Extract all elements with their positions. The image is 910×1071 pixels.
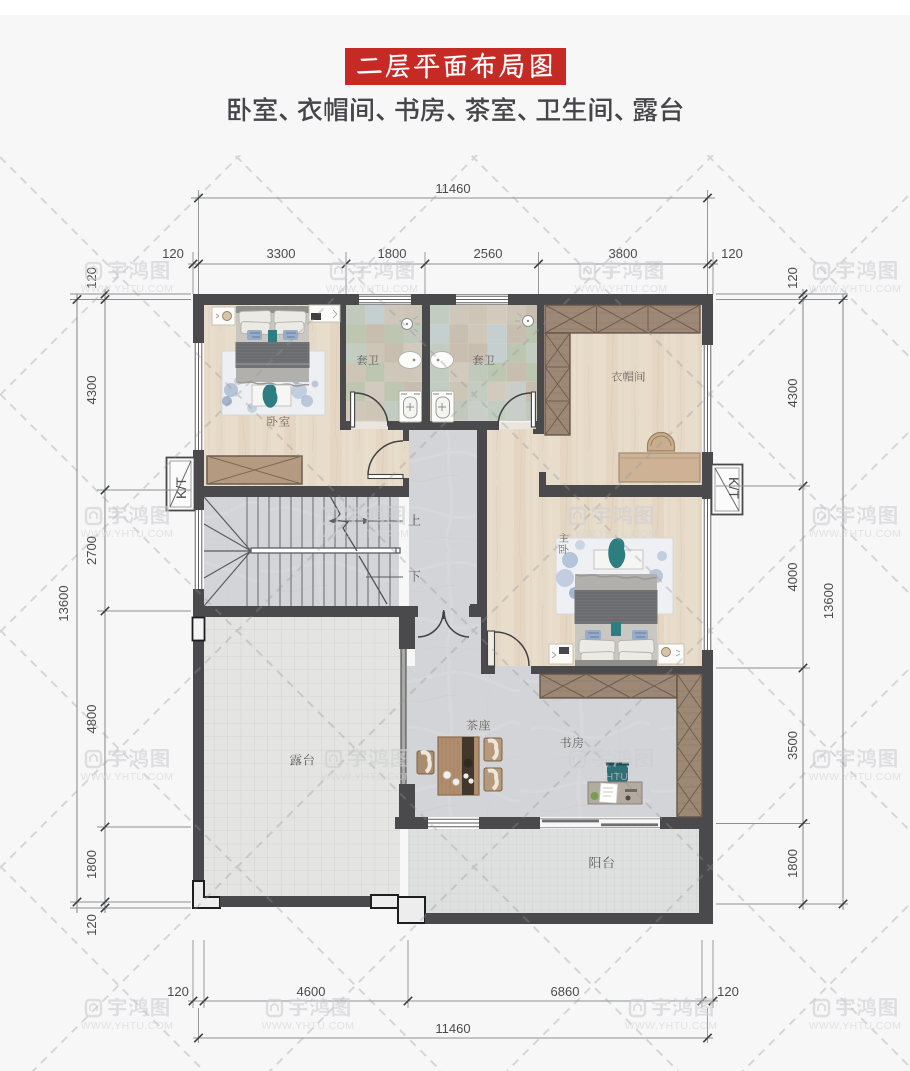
svg-text:WWW.YHTU.COM: WWW.YHTU.COM [321, 771, 414, 783]
svg-text:WWW.YHTU.COM: WWW.YHTU.COM [262, 1020, 355, 1032]
svg-text:120: 120 [84, 914, 99, 936]
svg-text:4300: 4300 [785, 379, 800, 408]
svg-text:WWW.YHTU.COM: WWW.YHTU.COM [81, 283, 174, 295]
svg-text:120: 120 [785, 267, 800, 289]
svg-text:3500: 3500 [785, 731, 800, 760]
svg-text:WWW.YHTU.COM: WWW.YHTU.COM [809, 771, 902, 783]
svg-text:1800: 1800 [84, 850, 99, 879]
svg-text:WWW.YHTU.COM: WWW.YHTU.COM [809, 528, 902, 540]
svg-text:13600: 13600 [56, 585, 71, 621]
svg-text:2560: 2560 [474, 246, 503, 261]
svg-text:WWW.YHTU.COM: WWW.YHTU.COM [809, 1020, 902, 1032]
svg-text:120: 120 [162, 246, 184, 261]
svg-text:WWW.YHTU.COM: WWW.YHTU.COM [565, 771, 658, 783]
svg-text:4300: 4300 [84, 376, 99, 405]
svg-text:1800: 1800 [378, 246, 407, 261]
svg-text:2700: 2700 [84, 536, 99, 565]
svg-text:WWW.YHTU.COM: WWW.YHTU.COM [81, 1020, 174, 1032]
svg-text:K/T: K/T [173, 477, 189, 499]
svg-text:11460: 11460 [435, 1021, 470, 1036]
svg-text:3800: 3800 [609, 246, 638, 261]
svg-text:WWW.YHTU.COM: WWW.YHTU.COM [565, 528, 658, 540]
svg-text:WWW.YHTU.COM: WWW.YHTU.COM [809, 283, 902, 295]
svg-text:120: 120 [717, 984, 739, 999]
svg-text:11460: 11460 [435, 181, 470, 196]
svg-text:WWW.YHTU.COM: WWW.YHTU.COM [326, 283, 419, 295]
svg-text:3300: 3300 [267, 246, 296, 261]
svg-text:1800: 1800 [785, 849, 800, 878]
svg-text:4800: 4800 [84, 705, 99, 734]
svg-text:120: 120 [167, 984, 189, 999]
svg-text:K/T: K/T [726, 477, 742, 499]
svg-text:WWW.YHTU.COM: WWW.YHTU.COM [81, 771, 174, 783]
svg-text:WWW.YHTU.COM: WWW.YHTU.COM [81, 528, 174, 540]
svg-text:4600: 4600 [297, 984, 326, 999]
svg-text:WWW.YHTU.COM: WWW.YHTU.COM [575, 283, 668, 295]
svg-text:6860: 6860 [551, 984, 580, 999]
svg-text:4000: 4000 [785, 563, 800, 592]
svg-text:WWW.YHTU.COM: WWW.YHTU.COM [317, 528, 410, 540]
svg-text:120: 120 [721, 246, 743, 261]
svg-text:13600: 13600 [821, 583, 836, 619]
svg-text:WWW.YHTU.COM: WWW.YHTU.COM [625, 1020, 718, 1032]
